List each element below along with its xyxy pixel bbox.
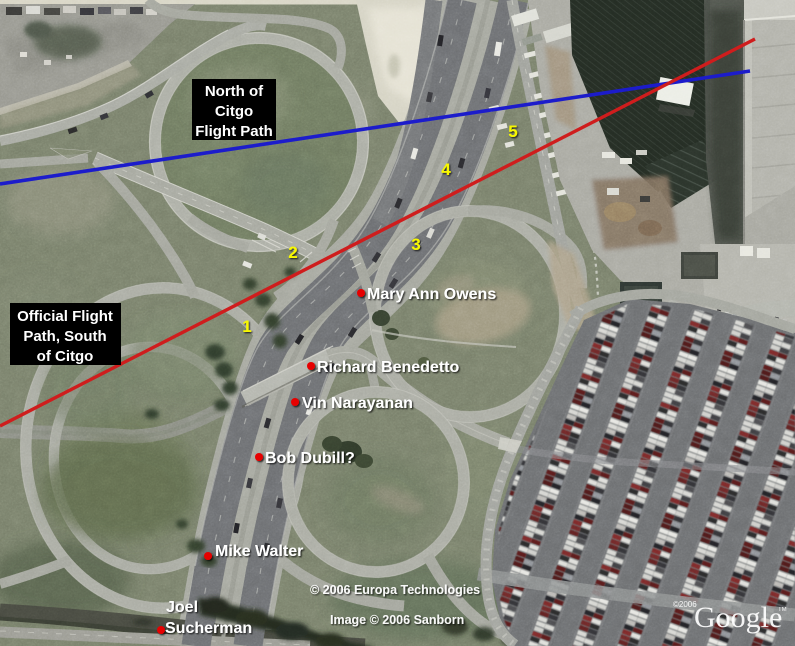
svg-text:Sucherman: Sucherman: [165, 620, 252, 637]
svg-text:2: 2: [288, 243, 297, 262]
svg-text:Official Flight: Official Flight: [17, 308, 113, 325]
svg-text:© 2006 Europa Technologies: © 2006 Europa Technologies: [310, 583, 480, 597]
svg-text:4: 4: [441, 160, 451, 179]
svg-text:Mary Ann Owens: Mary Ann Owens: [367, 286, 496, 303]
svg-text:Path, South: Path, South: [23, 328, 106, 345]
svg-text:Image © 2006 Sanborn: Image © 2006 Sanborn: [330, 613, 464, 627]
svg-text:5: 5: [508, 122, 517, 141]
svg-text:Flight Path: Flight Path: [195, 123, 273, 140]
svg-text:Citgo: Citgo: [215, 103, 253, 120]
svg-text:Vin Narayanan: Vin Narayanan: [302, 395, 413, 412]
svg-text:1: 1: [242, 317, 251, 336]
svg-text:Richard Benedetto: Richard Benedetto: [317, 359, 459, 376]
svg-text:of Citgo: of Citgo: [37, 348, 94, 365]
svg-text:TM: TM: [778, 607, 787, 613]
svg-text:Google: Google: [694, 601, 782, 634]
svg-text:Joel: Joel: [166, 599, 198, 616]
svg-text:©2006: ©2006: [673, 600, 697, 609]
svg-text:Bob Dubill?: Bob Dubill?: [265, 450, 355, 467]
svg-text:North of: North of: [205, 83, 264, 100]
svg-text:3: 3: [411, 235, 420, 254]
svg-text:Mike Walter: Mike Walter: [215, 543, 303, 560]
